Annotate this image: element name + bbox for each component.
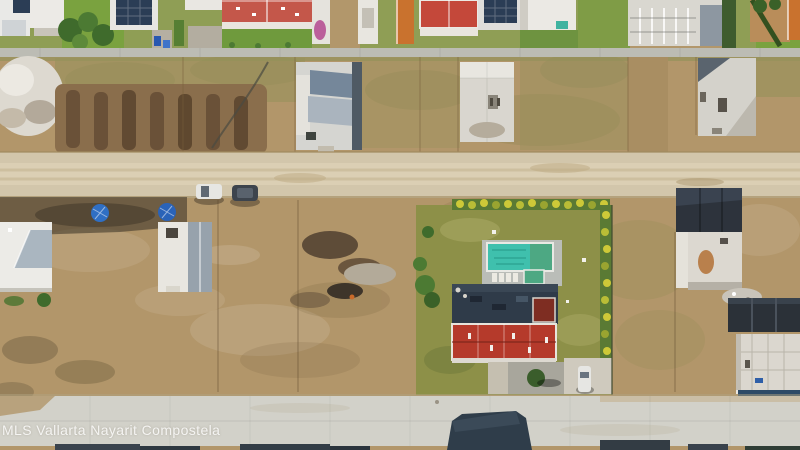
red-roof-duplex: [222, 0, 312, 49]
white-slab-construction: [460, 62, 514, 142]
blue-tarp: [91, 204, 109, 222]
solar-panel-array: [13, 0, 30, 13]
terracotta-roof: [396, 0, 414, 44]
blue-bin: [154, 36, 161, 46]
bougainvillea: [314, 20, 326, 40]
small-pool: [556, 21, 568, 29]
red-tile-roof: [452, 324, 556, 363]
gray-house-construction: [296, 62, 362, 152]
concrete-street: [0, 394, 800, 446]
dark-roofs-row: [728, 298, 800, 332]
dirt-path: [628, 57, 668, 153]
aerial-photo: MLS Vallarta Nayarit Compostela: [0, 0, 800, 450]
blue-tarp: [158, 203, 176, 221]
second-white-home: [158, 222, 212, 292]
parked-pickup-truck: [194, 184, 224, 205]
solar-panel-array: [484, 0, 517, 23]
solar-panel-array: [116, 0, 152, 25]
patio-and-driveway: [488, 358, 612, 394]
flowering-hedge-top: [452, 199, 610, 210]
flat-dark-roof: [452, 284, 558, 324]
bottom-right-construction: [736, 334, 800, 394]
construction-complex: [628, 0, 722, 46]
pool-home-property: [413, 199, 612, 395]
dark-roof-construction: [676, 188, 742, 290]
right-white-construction: [698, 58, 756, 136]
dark-hip-roof: [447, 411, 532, 450]
aerial-photo-canvas: [0, 0, 800, 450]
terracotta-roof: [788, 0, 800, 40]
blue-bin: [163, 40, 170, 48]
parked-suv: [230, 185, 260, 207]
